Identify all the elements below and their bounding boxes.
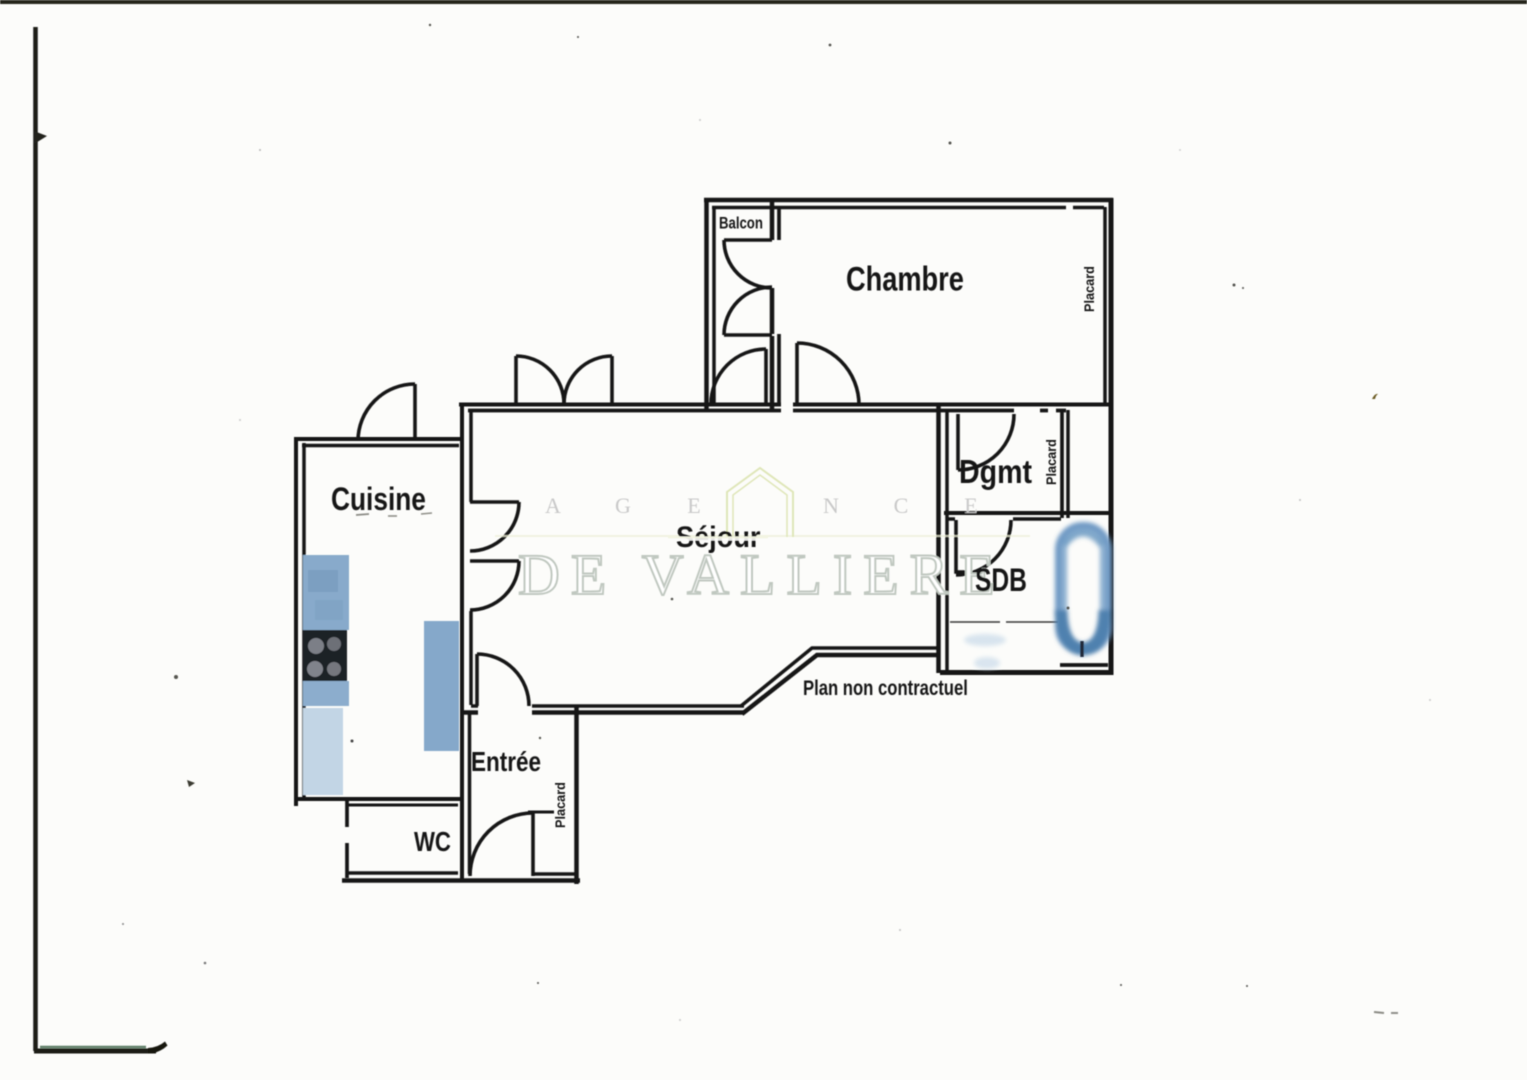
svg-text:DE VALLIERE: DE VALLIERE [518,542,1006,607]
svg-text:E: E [964,493,977,518]
svg-text:Chambre: Chambre [846,260,964,299]
svg-text:Balcon: Balcon [719,214,763,233]
svg-text:C: C [894,493,909,518]
svg-text:Placard: Placard [1044,439,1059,485]
svg-text:G: G [615,493,631,518]
svg-text:Dgmt: Dgmt [959,453,1032,490]
svg-text:WC: WC [414,827,451,858]
svg-text:Entrée: Entrée [471,747,541,778]
svg-text:Cuisine: Cuisine [331,482,426,518]
svg-text:Placard: Placard [553,782,568,828]
svg-text:N: N [823,493,839,518]
svg-text:SDB: SDB [975,563,1027,599]
svg-text:Plan non contractuel: Plan non contractuel [803,677,968,700]
svg-text:E: E [687,493,700,518]
svg-text:A: A [545,493,561,518]
svg-text:Placard: Placard [1082,266,1097,312]
